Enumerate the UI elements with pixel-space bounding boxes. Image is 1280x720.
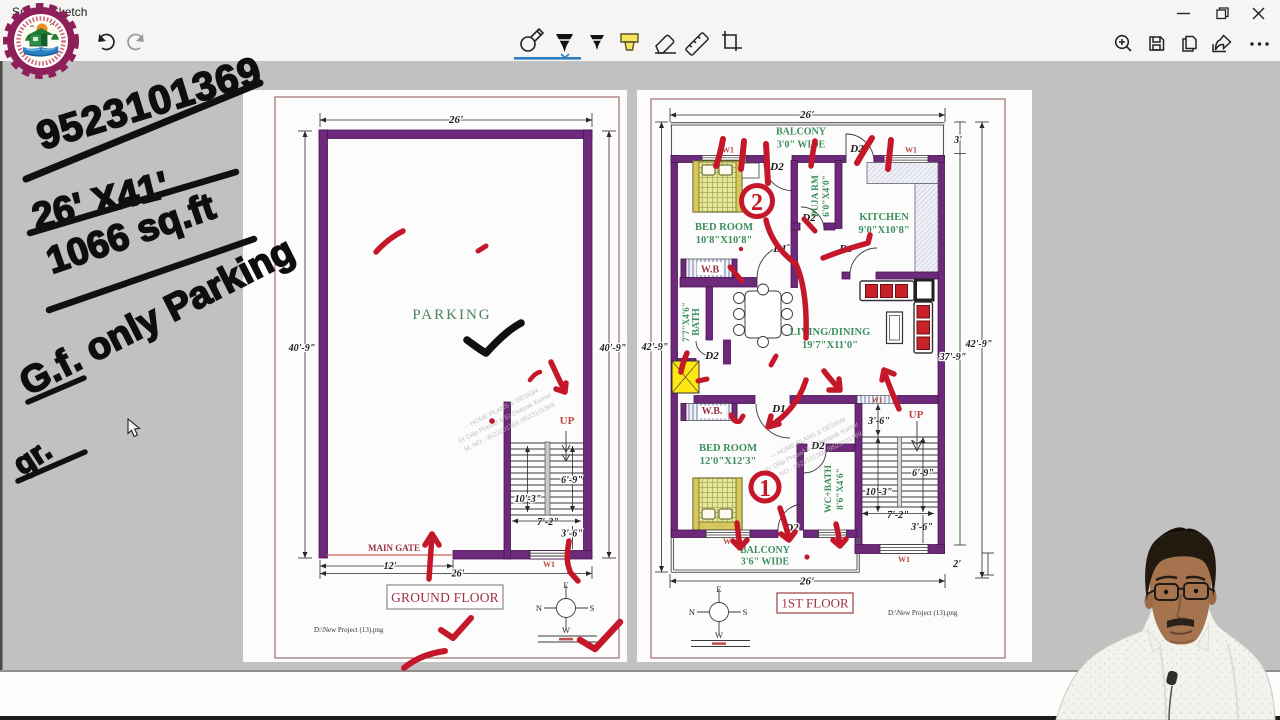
svg-text:7'-2": 7'-2" — [537, 517, 559, 528]
svg-text:10'-3": 10'-3" — [866, 487, 893, 498]
svg-text:40'-9": 40'-9" — [599, 343, 627, 354]
svg-text:7'7"X4'6": 7'7"X4'6" — [681, 302, 691, 342]
svg-text:W: W — [715, 630, 723, 640]
svg-text:40'-9": 40'-9" — [288, 343, 316, 354]
svg-text:PARKING: PARKING — [412, 307, 491, 323]
svg-text:PUJA RM: PUJA RM — [811, 175, 821, 217]
svg-text:W.B.: W.B. — [702, 406, 723, 417]
svg-text:BALCONY: BALCONY — [740, 545, 791, 556]
svg-text:D:\New Project (13).png: D:\New Project (13).png — [314, 626, 384, 634]
svg-text:7'-2": 7'-2" — [887, 510, 909, 521]
svg-text:BED ROOM: BED ROOM — [695, 222, 753, 233]
svg-text:UP: UP — [909, 409, 924, 421]
svg-text:UP: UP — [560, 415, 575, 427]
svg-text:D:\New Project (13).png: D:\New Project (13).png — [888, 609, 958, 617]
svg-text:2': 2' — [952, 559, 961, 570]
svg-text:26': 26' — [799, 109, 814, 121]
svg-text:D2: D2 — [769, 161, 784, 173]
svg-text:W.B: W.B — [701, 265, 720, 276]
svg-text:3'0" WIDE: 3'0" WIDE — [777, 140, 826, 151]
svg-text:6'0"X4'0": 6'0"X4'0" — [822, 175, 832, 217]
svg-text:42'-9": 42'-9" — [965, 339, 993, 350]
svg-text:37'-9": 37'-9" — [939, 352, 967, 363]
svg-text:E: E — [716, 584, 721, 594]
svg-text:MAIN GATE: MAIN GATE — [368, 543, 420, 553]
svg-text:26': 26' — [799, 576, 814, 588]
svg-text:BATH: BATH — [691, 308, 702, 336]
svg-text:12': 12' — [384, 561, 397, 572]
svg-text:3'-6": 3'-6" — [560, 529, 583, 540]
svg-text:1: 1 — [759, 476, 771, 502]
svg-text:D2: D2 — [704, 350, 719, 362]
svg-text:9'0"X10'8": 9'0"X10'8" — [858, 225, 909, 236]
svg-text:3': 3' — [953, 135, 962, 146]
svg-text:W1: W1 — [898, 555, 910, 564]
svg-text:W1: W1 — [872, 397, 883, 405]
svg-text:42'-9": 42'-9" — [641, 342, 669, 353]
svg-text:N: N — [689, 607, 695, 617]
svg-text:S: S — [743, 607, 748, 617]
svg-text:W1: W1 — [543, 560, 555, 569]
svg-text:1ST FLOOR: 1ST FLOOR — [781, 596, 849, 611]
svg-text:3'-6": 3'-6" — [867, 416, 890, 427]
svg-text:BED ROOM: BED ROOM — [699, 443, 757, 454]
svg-text:WC+BATH: WC+BATH — [824, 464, 834, 513]
svg-text:26': 26' — [451, 569, 465, 580]
svg-text:GROUND FLOOR: GROUND FLOOR — [391, 590, 499, 605]
svg-text:3'6" WIDE: 3'6" WIDE — [741, 557, 790, 568]
svg-text:W: W — [723, 537, 731, 546]
svg-text:10'8"X10'8": 10'8"X10'8" — [696, 235, 753, 246]
svg-text:8'6"X4'6": 8'6"X4'6" — [836, 468, 846, 510]
svg-text:N: N — [536, 603, 542, 613]
svg-text:10'-3": 10'-3" — [515, 494, 542, 505]
svg-text:BALCONY: BALCONY — [776, 127, 827, 138]
svg-text:W: W — [562, 625, 570, 635]
svg-text:3'-6": 3'-6" — [910, 522, 933, 533]
svg-text:LIVING/DINING: LIVING/DINING — [790, 327, 871, 338]
svg-text:6'-9": 6'-9" — [561, 475, 583, 486]
svg-text:KITCHEN: KITCHEN — [859, 212, 909, 223]
svg-text:26': 26' — [448, 114, 463, 126]
svg-text:S: S — [590, 603, 595, 613]
svg-text:12'0"X12'3": 12'0"X12'3" — [700, 456, 757, 467]
svg-text:19'7"X11'0": 19'7"X11'0" — [802, 340, 858, 351]
svg-text:W1: W1 — [905, 146, 917, 155]
svg-text:E: E — [563, 580, 568, 590]
svg-text:2: 2 — [751, 190, 763, 216]
